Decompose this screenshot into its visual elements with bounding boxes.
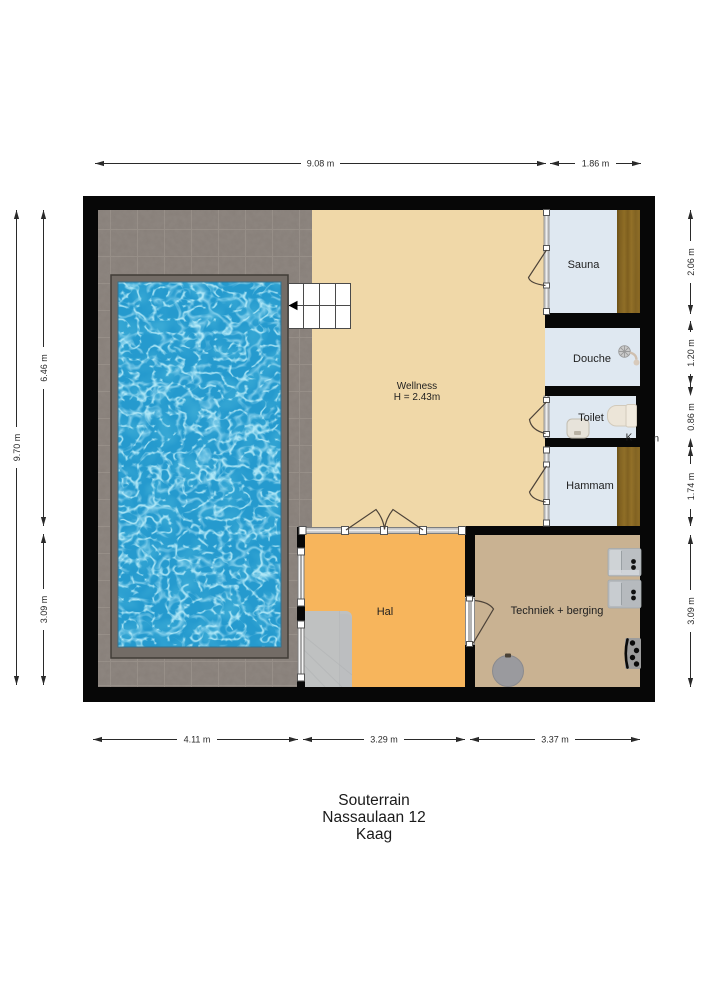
svg-text:3.37 m: 3.37 m [541,735,569,745]
svg-text:3.09 m: 3.09 m [686,597,696,625]
svg-text:Douche: Douche [573,353,611,365]
svg-text:Toilet: Toilet [578,412,604,424]
svg-text:0.86 m: 0.86 m [686,403,696,431]
svg-text:3.09 m: 3.09 m [39,596,49,624]
svg-text:n: n [654,434,660,445]
svg-text:9.08 m: 9.08 m [307,159,335,169]
svg-text:Nassaulaan 12: Nassaulaan 12 [322,809,425,826]
svg-text:1.74 m: 1.74 m [686,473,696,501]
svg-text:Sauna: Sauna [568,259,601,271]
svg-text:9.70 m: 9.70 m [12,434,22,462]
svg-text:Hammam: Hammam [566,480,614,492]
svg-text:Souterrain: Souterrain [338,792,410,809]
svg-text:K: K [626,433,633,444]
svg-text:6.46 m: 6.46 m [39,354,49,382]
svg-text:Kaag: Kaag [356,826,392,843]
svg-text:4.11 m: 4.11 m [184,735,211,745]
svg-text:Wellness: Wellness [397,381,437,392]
svg-text:H = 2.43m: H = 2.43m [394,392,440,403]
svg-text:Hal: Hal [377,606,394,618]
svg-text:2.06 m: 2.06 m [686,248,696,276]
svg-text:1.86 m: 1.86 m [582,159,610,169]
svg-text:1.20 m: 1.20 m [686,339,696,367]
svg-text:Techniek + berging: Techniek + berging [511,605,604,617]
svg-text:3.29 m: 3.29 m [370,735,398,745]
